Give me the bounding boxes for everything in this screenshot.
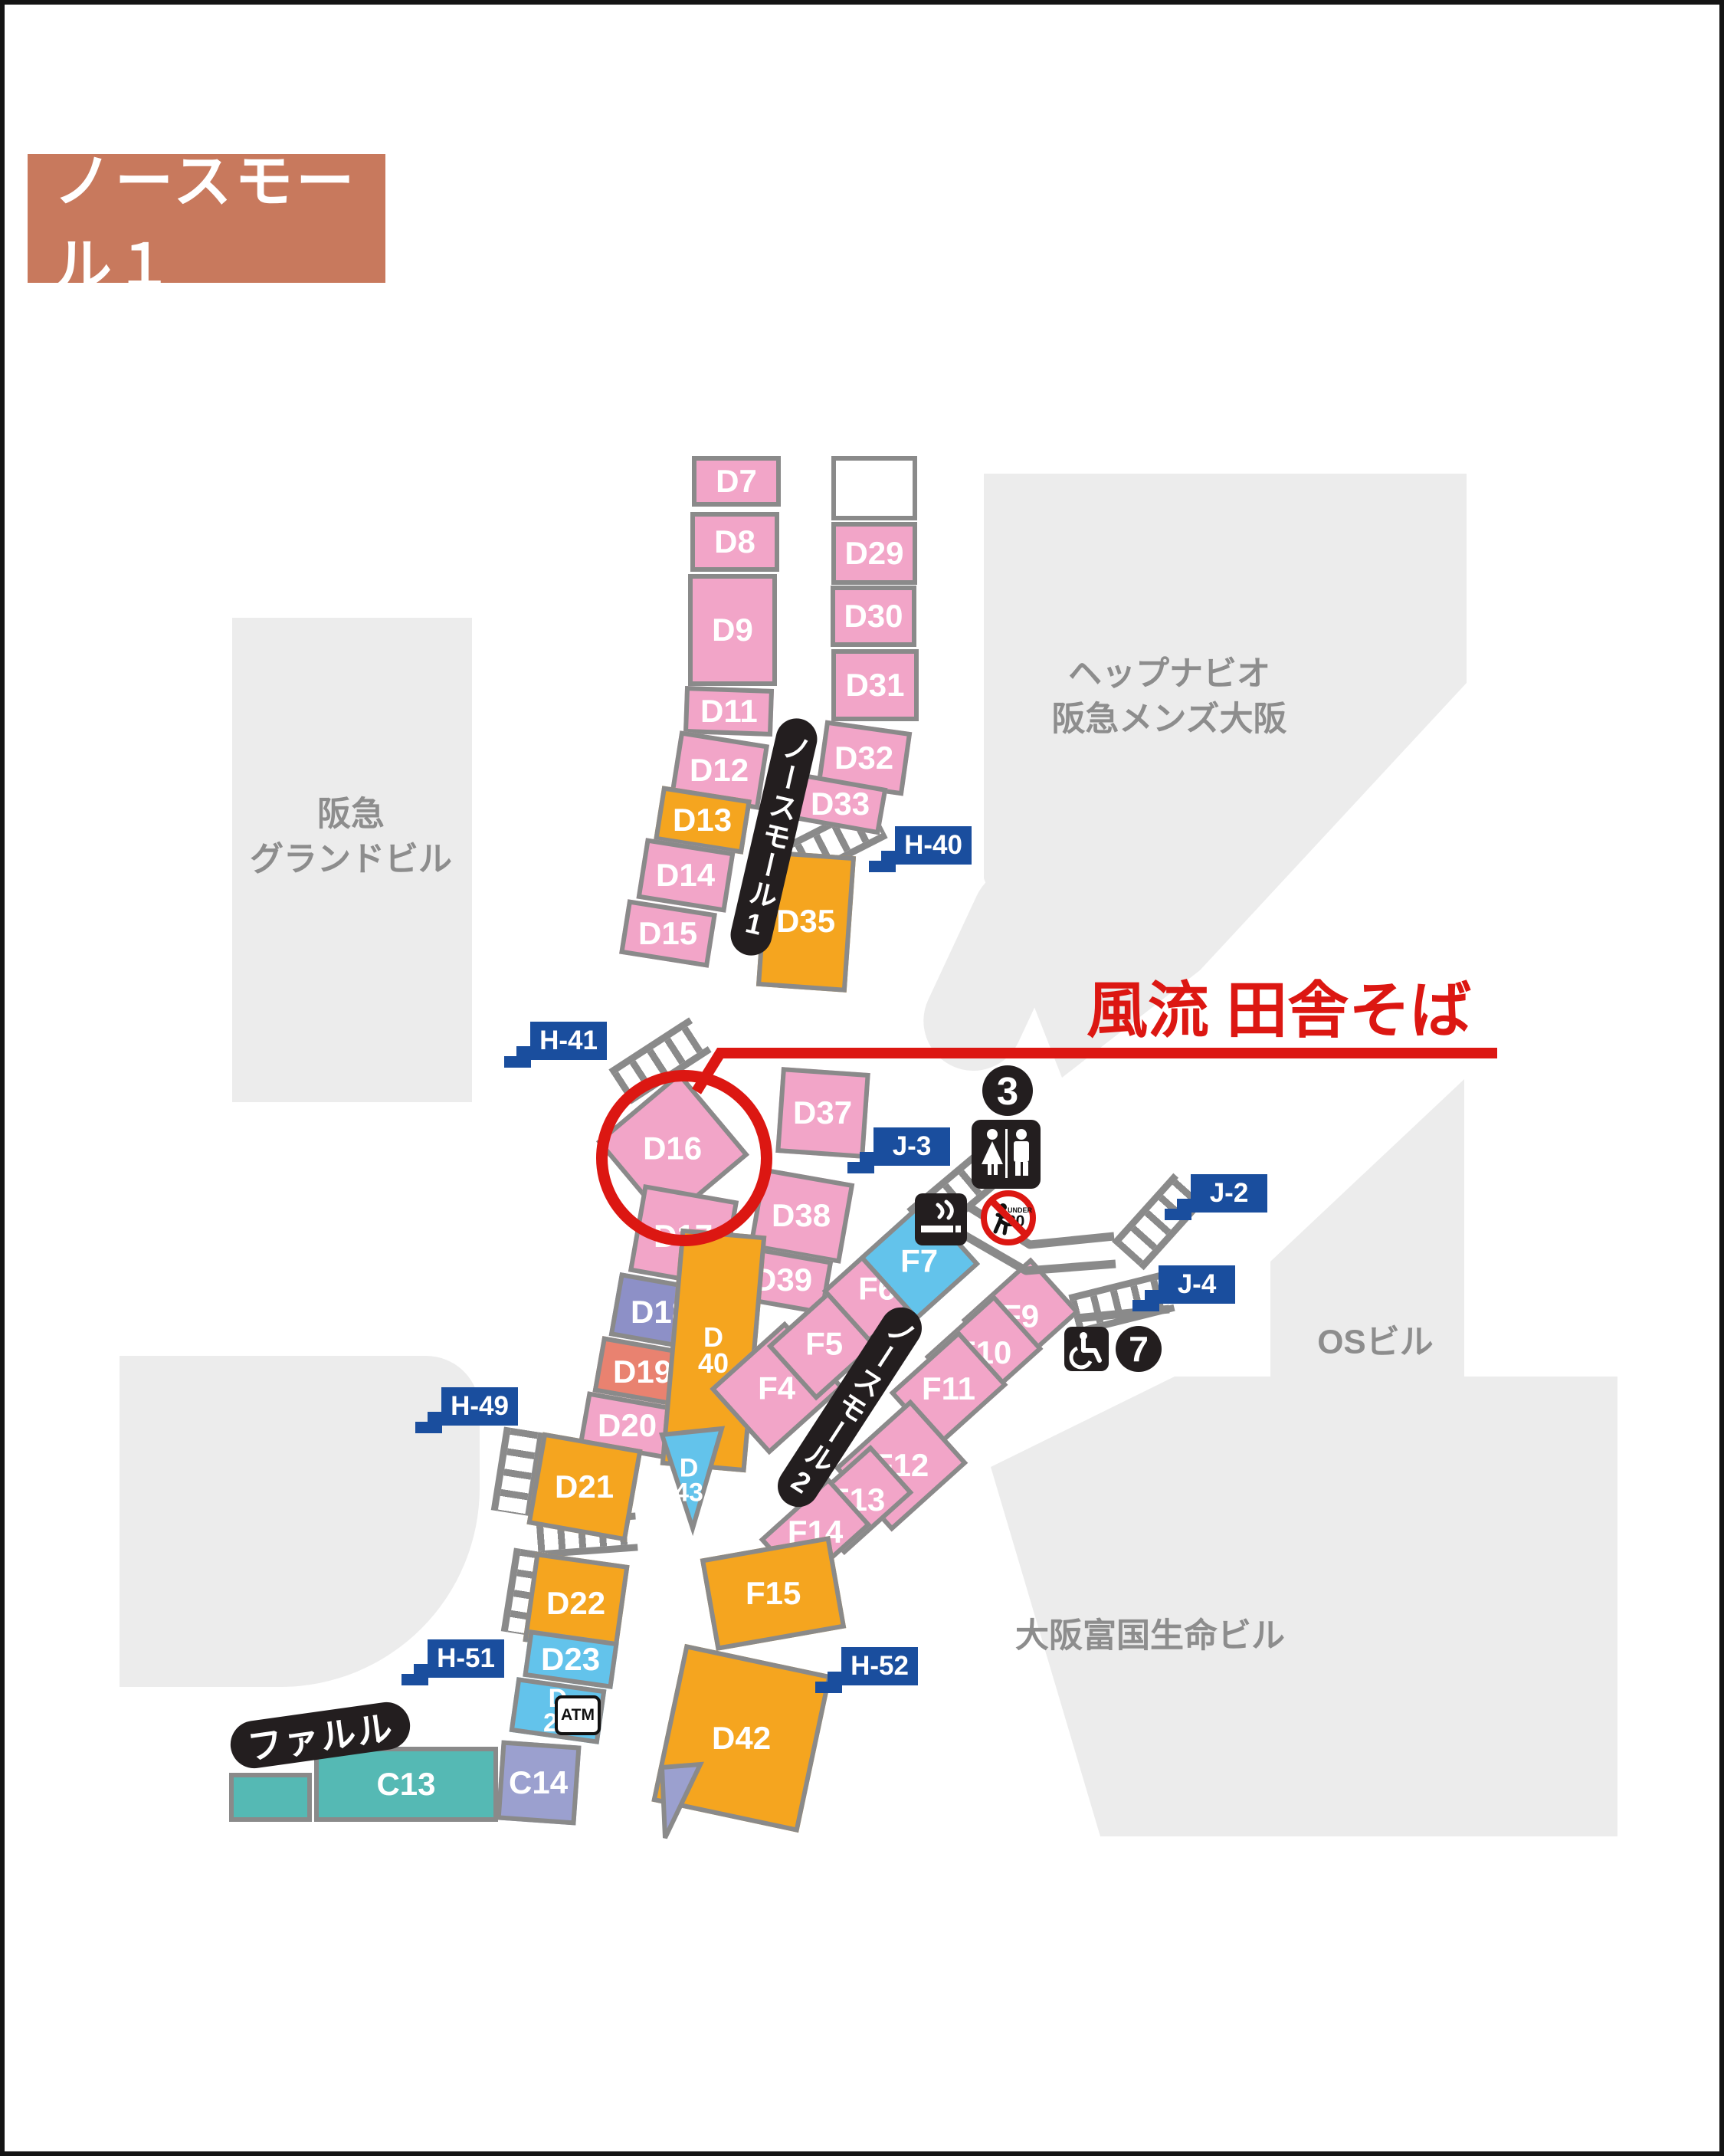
shop-unit-label: D11	[700, 696, 758, 727]
exit-flag-label: J-2	[1191, 1174, 1267, 1213]
shop-unit-D31: D31	[831, 649, 919, 721]
shop-unit-label: D9	[712, 615, 753, 645]
shop-unit-D37: D37	[775, 1067, 870, 1159]
exit-flag-label: H-51	[428, 1639, 504, 1678]
shop-unit-label: D23	[541, 1644, 600, 1675]
shop-unit-C14: C14	[496, 1740, 581, 1825]
shop-unit-label: D13	[673, 805, 732, 835]
shop-unit-label: F11	[922, 1373, 975, 1404]
corridor-wall-line	[962, 1234, 1116, 1271]
shop-unit-D42: D42	[651, 1644, 831, 1833]
shop-unit-label: D29	[844, 538, 903, 569]
atm-icon: ATM	[555, 1695, 601, 1735]
toilet-icon	[972, 1120, 1041, 1189]
exit-flag-label: H-49	[441, 1387, 518, 1426]
shop-unit-D9: D9	[688, 574, 777, 686]
shop-unit-label: D15	[638, 918, 697, 949]
exit-flag-label: H-41	[530, 1022, 607, 1060]
fukoku-seimei-building	[991, 1377, 1617, 1836]
fukoku-seimei-building-label: 大阪富国生命ビル	[1015, 1613, 1285, 1658]
shop-unit-label: C14	[509, 1767, 568, 1798]
stair-step-icon	[415, 1422, 428, 1433]
shop-unit-D15: D15	[619, 899, 717, 968]
stair-step-icon	[815, 1682, 828, 1693]
stair-step-icon	[847, 1162, 860, 1173]
stair-step-icon	[1132, 1300, 1146, 1311]
shop-unit-D7: D7	[692, 456, 781, 507]
hankyu-grand-building-label: 阪急 グランドビル	[250, 792, 452, 883]
shop-unit-label: D42	[712, 1723, 771, 1754]
southwest-block	[120, 1356, 480, 1687]
exit-flag-H-41: H-41	[530, 1022, 607, 1060]
exit-number-badge-3: 3	[982, 1065, 1033, 1116]
shop-unit-C13: C13	[314, 1747, 498, 1822]
shop-unit-label: D20	[598, 1410, 657, 1441]
shop-unit-D14: D14	[636, 838, 735, 912]
shop-unit-D43-label: D 43	[674, 1456, 703, 1506]
map-area: 阪急 グランドビルヘップナビオ 阪急メンズ大阪OSビル大阪富国生命ビルD7D8D…	[5, 5, 1724, 2156]
exit-flag-label: J-4	[1159, 1265, 1235, 1304]
exit-flag-J-4: J-4	[1159, 1265, 1235, 1304]
shop-unit-label: D37	[793, 1098, 852, 1128]
exit-flag-label: J-3	[873, 1127, 950, 1166]
shop-unit-label: D19	[613, 1357, 672, 1387]
exit-flag-H-49: H-49	[441, 1387, 518, 1426]
stair-step-icon	[504, 1056, 517, 1068]
hep-navio-hankyu-mens-osaka-label: ヘップナビオ 阪急メンズ大阪	[1051, 651, 1286, 743]
shop-unit-label: D33	[811, 789, 870, 819]
exit-flag-H-51: H-51	[428, 1639, 504, 1678]
exit-flag-label: H-40	[895, 826, 972, 865]
shop-unit-label: D14	[656, 860, 715, 891]
shop-unit-D8: D8	[690, 512, 779, 572]
shop-unit-label: D12	[690, 755, 749, 786]
shop-unit-label: D38	[772, 1200, 831, 1231]
shop-unit-vacant	[831, 456, 917, 520]
stair-step-icon	[414, 1664, 428, 1685]
shop-unit-label: D32	[834, 743, 893, 773]
exit-flag-J-3: J-3	[873, 1127, 950, 1166]
shop-unit-D30: D30	[831, 586, 916, 647]
shop-unit-label: D30	[844, 601, 903, 632]
shop-unit-label: F4	[758, 1373, 795, 1403]
smoking-area-icon	[915, 1193, 967, 1245]
shop-unit-label: F5	[805, 1328, 843, 1359]
shop-unit-D29: D29	[831, 522, 917, 585]
exit-flag-J-2: J-2	[1191, 1174, 1267, 1213]
shop-unit-C12	[229, 1773, 312, 1822]
stair-step-icon	[860, 1152, 874, 1173]
stair-step-icon	[828, 1672, 842, 1693]
stair-step-icon	[881, 851, 896, 872]
mall-floor-map: ノースモール１ 阪急 グランドビルヘップナビオ 阪急メンズ大阪OSビル大阪富国生…	[0, 0, 1724, 2156]
shop-unit-label: D22	[546, 1588, 605, 1619]
exit-flag-H-52: H-52	[841, 1647, 918, 1685]
exit-number-badge-7: 7	[1116, 1326, 1162, 1372]
stair-step-icon	[402, 1674, 415, 1685]
stair-step-icon	[1145, 1290, 1159, 1311]
shop-unit-D21: D21	[526, 1432, 642, 1541]
shop-unit-label: D21	[555, 1472, 614, 1502]
shop-unit-D11: D11	[683, 686, 774, 737]
stair-step-icon	[428, 1412, 442, 1433]
wheelchair-accessible-icon	[1064, 1327, 1109, 1371]
stair-step-icon	[1177, 1199, 1191, 1220]
exit-flag-H-40: H-40	[895, 826, 972, 865]
no-under-20-icon: UNDER 20	[981, 1190, 1036, 1245]
stair-step-icon	[1165, 1209, 1178, 1220]
shop-unit-label: C13	[376, 1769, 435, 1800]
stair-step-icon	[869, 861, 882, 872]
os-building-label: OSビル	[1317, 1319, 1434, 1364]
shop-unit-label: D35	[776, 906, 835, 937]
highlight-circle	[596, 1070, 772, 1246]
highlighted-shop-name: 風流 田舎そば	[1087, 961, 1471, 1050]
shop-unit-label: D7	[716, 466, 757, 497]
shop-unit-label: D 40	[698, 1324, 729, 1377]
shop-unit-label: F15	[746, 1578, 801, 1609]
shop-unit-label: F7	[900, 1245, 938, 1276]
stair-step-icon	[516, 1046, 531, 1068]
shop-unit-F15: F15	[700, 1536, 847, 1651]
shop-unit-label: D31	[845, 670, 904, 701]
exit-flag-label: H-52	[841, 1647, 918, 1685]
shop-unit-label: D8	[714, 527, 755, 557]
